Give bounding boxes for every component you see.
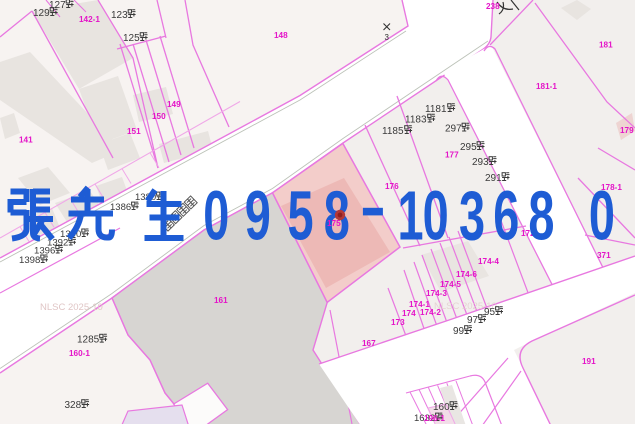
svg-text:6: 6 bbox=[493, 176, 519, 255]
svg-text:1285: 1285 bbox=[77, 335, 100, 346]
svg-text:123: 123 bbox=[111, 10, 128, 21]
svg-text:174-2: 174-2 bbox=[420, 308, 441, 317]
svg-text:5: 5 bbox=[288, 176, 314, 255]
svg-text:1181: 1181 bbox=[425, 104, 447, 115]
svg-text:127: 127 bbox=[49, 0, 66, 11]
svg-text:295: 295 bbox=[460, 142, 477, 153]
svg-text:151: 151 bbox=[127, 127, 141, 136]
svg-text:0: 0 bbox=[589, 176, 615, 255]
svg-text:191: 191 bbox=[582, 357, 596, 366]
svg-text:NLSC 2025-10: NLSC 2025-10 bbox=[40, 302, 103, 313]
svg-text:125: 125 bbox=[123, 33, 140, 44]
svg-text:297: 297 bbox=[445, 124, 462, 135]
svg-text:328: 328 bbox=[65, 400, 82, 411]
svg-text:160-1: 160-1 bbox=[69, 349, 90, 358]
svg-text:181: 181 bbox=[599, 41, 613, 50]
svg-text:179: 179 bbox=[620, 126, 634, 135]
svg-text:0: 0 bbox=[203, 176, 229, 255]
svg-text:174-5: 174-5 bbox=[440, 280, 461, 289]
svg-text:238: 238 bbox=[486, 2, 500, 11]
svg-text:181-1: 181-1 bbox=[536, 82, 557, 91]
svg-text:174-6: 174-6 bbox=[456, 270, 477, 279]
svg-text:148: 148 bbox=[274, 31, 288, 40]
svg-text:1386: 1386 bbox=[110, 202, 131, 213]
svg-text:129: 129 bbox=[33, 8, 50, 19]
svg-text:99: 99 bbox=[453, 326, 465, 337]
svg-text:1183: 1183 bbox=[405, 115, 427, 126]
svg-text:174: 174 bbox=[402, 309, 416, 318]
svg-text:175: 175 bbox=[327, 219, 341, 228]
svg-text:196-1: 196-1 bbox=[424, 414, 445, 423]
svg-text:9: 9 bbox=[245, 176, 271, 255]
svg-text:1: 1 bbox=[398, 176, 424, 255]
svg-text:160: 160 bbox=[433, 402, 450, 413]
svg-text:174-4: 174-4 bbox=[478, 257, 499, 266]
svg-text:141: 141 bbox=[19, 136, 33, 145]
svg-text:167: 167 bbox=[362, 339, 376, 348]
svg-text:97: 97 bbox=[467, 315, 479, 326]
svg-text:8: 8 bbox=[528, 176, 554, 255]
svg-text:3: 3 bbox=[385, 33, 390, 42]
svg-text:0: 0 bbox=[423, 176, 449, 255]
svg-text:161: 161 bbox=[214, 296, 228, 305]
svg-text:150: 150 bbox=[152, 112, 166, 121]
svg-text:293: 293 bbox=[472, 157, 489, 168]
svg-text:1398: 1398 bbox=[19, 255, 40, 266]
svg-text:149: 149 bbox=[167, 100, 181, 109]
svg-text:177: 177 bbox=[445, 151, 459, 160]
svg-text:3: 3 bbox=[459, 176, 485, 255]
svg-text:174-3: 174-3 bbox=[426, 289, 447, 298]
svg-text:1185: 1185 bbox=[382, 126, 404, 137]
svg-text:142-1: 142-1 bbox=[79, 15, 100, 24]
svg-text:173: 173 bbox=[391, 318, 405, 327]
